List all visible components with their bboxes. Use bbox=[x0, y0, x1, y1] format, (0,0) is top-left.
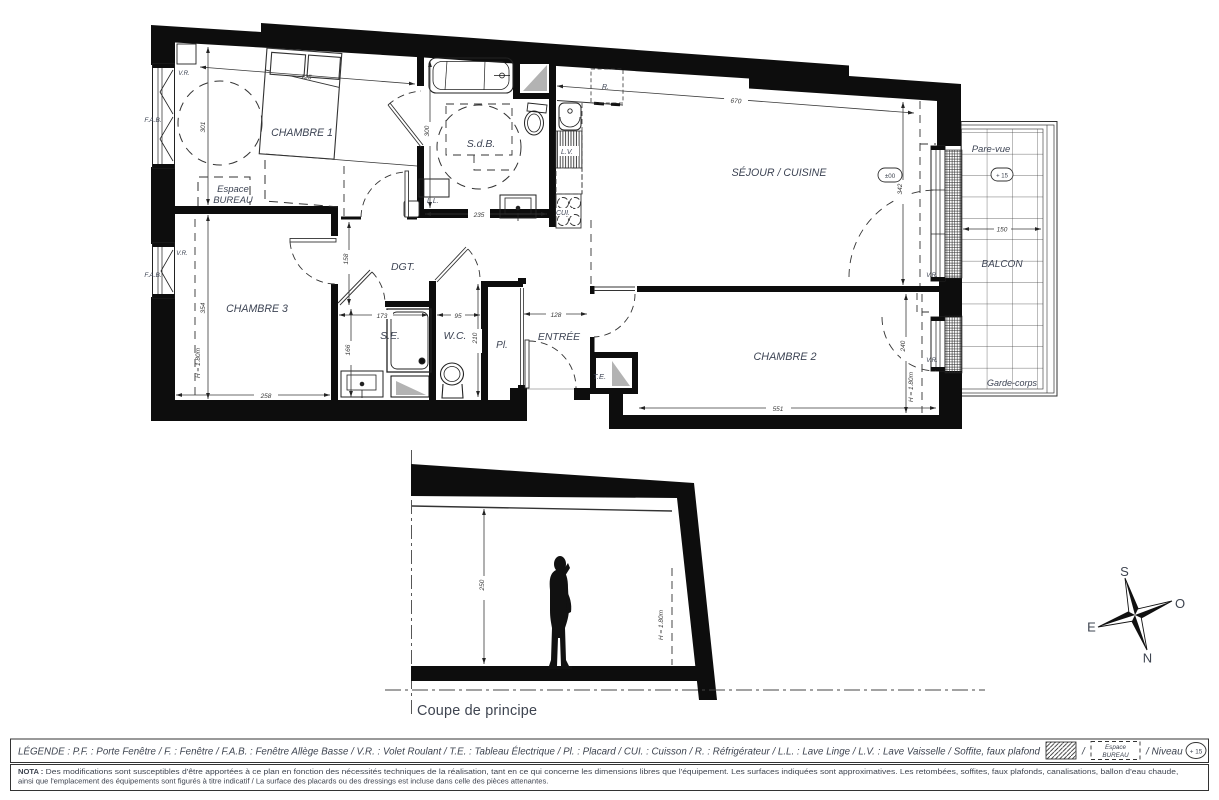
svg-text:173: 173 bbox=[377, 313, 388, 320]
svg-text:128: 128 bbox=[551, 312, 562, 319]
svg-text:N: N bbox=[1143, 651, 1152, 666]
svg-text:250: 250 bbox=[479, 579, 486, 591]
svg-text:H = 1.80m: H = 1.80m bbox=[908, 371, 915, 402]
svg-text:210: 210 bbox=[472, 332, 479, 344]
svg-text:V.R.: V.R. bbox=[176, 250, 188, 257]
svg-text:L.V.: L.V. bbox=[561, 149, 573, 156]
svg-text:Pare-vue: Pare-vue bbox=[972, 144, 1011, 155]
svg-text:125: 125 bbox=[300, 74, 312, 82]
svg-text:Garde-corps: Garde-corps bbox=[987, 378, 1038, 388]
svg-text:E: E bbox=[1087, 620, 1096, 635]
svg-text:ENTRÉE: ENTRÉE bbox=[538, 330, 581, 343]
svg-text:BUREAU: BUREAU bbox=[1102, 752, 1129, 759]
svg-text:CHAMBRE 1: CHAMBRE 1 bbox=[271, 127, 333, 139]
svg-text:301: 301 bbox=[200, 121, 207, 132]
svg-text:BALCON: BALCON bbox=[981, 259, 1023, 270]
svg-text:H = 1.80m: H = 1.80m bbox=[658, 609, 665, 640]
svg-text:Coupe de principe: Coupe de principe bbox=[417, 703, 537, 719]
svg-text:300: 300 bbox=[424, 125, 431, 136]
svg-text:O: O bbox=[1175, 596, 1185, 611]
svg-text:354: 354 bbox=[200, 302, 207, 313]
svg-text:CHAMBRE 2: CHAMBRE 2 bbox=[754, 351, 817, 363]
svg-text:F.A.B.: F.A.B. bbox=[144, 117, 161, 124]
svg-text:240: 240 bbox=[900, 340, 907, 352]
svg-text:W.C.: W.C. bbox=[444, 330, 467, 342]
svg-text:+ 15: + 15 bbox=[996, 174, 1009, 180]
svg-text:166: 166 bbox=[345, 344, 352, 355]
svg-text:Espace: Espace bbox=[1105, 744, 1127, 751]
svg-text:235: 235 bbox=[473, 212, 485, 219]
svg-text:V.R.: V.R. bbox=[178, 70, 190, 77]
svg-text:S.d.B.: S.d.B. bbox=[467, 138, 496, 150]
svg-text:/ Niveau: / Niveau bbox=[1145, 747, 1183, 758]
svg-text:342: 342 bbox=[897, 183, 904, 194]
svg-text:L.L.: L.L. bbox=[427, 198, 439, 205]
svg-text:DGT.: DGT. bbox=[391, 261, 415, 273]
svg-text:551: 551 bbox=[773, 406, 784, 413]
svg-text:258: 258 bbox=[260, 393, 272, 400]
svg-text:SÉJOUR / CUISINE: SÉJOUR / CUISINE bbox=[732, 166, 828, 179]
svg-text:F.A.B.: F.A.B. bbox=[144, 272, 161, 279]
svg-text:S: S bbox=[1120, 564, 1129, 579]
svg-text:V.R.: V.R. bbox=[926, 272, 938, 279]
svg-text:ainsi que l'emplacement des éq: ainsi que l'emplacement des équipements … bbox=[18, 777, 548, 786]
svg-text:BUREAU: BUREAU bbox=[213, 195, 253, 206]
svg-text:±00: ±00 bbox=[885, 173, 896, 180]
svg-text:S.E.: S.E. bbox=[380, 330, 400, 342]
svg-text:NOTA : Des modifications sont: NOTA : Des modifications sont susceptibl… bbox=[18, 767, 1178, 776]
svg-text:670: 670 bbox=[730, 98, 742, 106]
svg-text:95: 95 bbox=[454, 313, 462, 320]
svg-text:+ 15: + 15 bbox=[1190, 749, 1203, 756]
svg-text:Espace: Espace bbox=[217, 184, 249, 195]
svg-text:V.R.: V.R. bbox=[926, 357, 938, 364]
svg-text:150: 150 bbox=[997, 227, 1008, 234]
svg-text:H = 1.80m: H = 1.80m bbox=[195, 347, 202, 378]
svg-text:Pl.: Pl. bbox=[496, 340, 508, 351]
svg-text:158: 158 bbox=[343, 253, 350, 264]
svg-text:CUI.: CUI. bbox=[556, 210, 570, 217]
svg-text:CHAMBRE 3: CHAMBRE 3 bbox=[226, 303, 288, 315]
svg-text:LÉGENDE : P.F. : Porte Fenêtr: LÉGENDE : P.F. : Porte Fenêtre / F. : Fe… bbox=[18, 745, 1040, 758]
svg-text:T.E.: T.E. bbox=[593, 372, 606, 381]
svg-text:R.: R. bbox=[602, 84, 609, 91]
